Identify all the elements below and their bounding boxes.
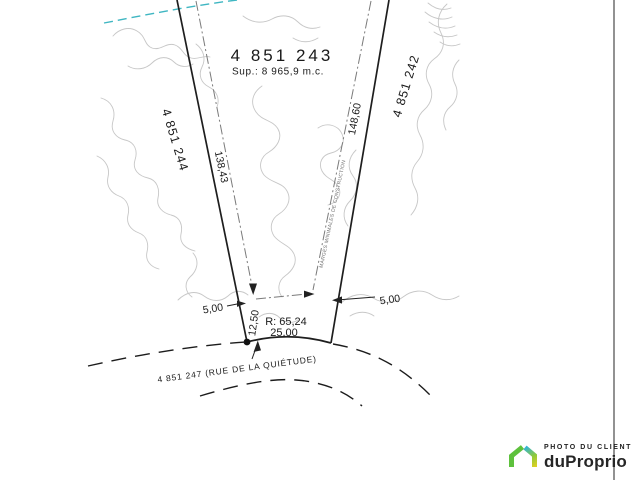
main-lot-number: 4 851 243	[231, 46, 334, 66]
setback-left-arrow	[237, 301, 246, 307]
road-edge-upper-right	[333, 344, 433, 398]
front-margin-line	[256, 294, 307, 299]
margin-down-arrow	[249, 284, 257, 296]
margin-right-arrow	[304, 291, 315, 298]
main-lot-area: Sup.: 8 965,9 m.c.	[232, 67, 324, 78]
frontage-dimension: 25,00	[270, 327, 298, 339]
road-edges	[88, 342, 433, 406]
left-margin-line	[196, 1, 252, 286]
duproprio-watermark: PHOTO DU CLIENT duProprio	[508, 443, 632, 470]
watermark-tagline: PHOTO DU CLIENT	[544, 444, 632, 451]
right-margin-line	[313, 1, 371, 290]
road-edge-lower	[200, 380, 362, 406]
duproprio-house-icon	[508, 443, 538, 470]
utility-stream-line	[104, 0, 237, 23]
watermark-brand: duProprio	[544, 453, 632, 470]
road-edge-upper-left	[88, 342, 246, 366]
street-up-arrow	[254, 341, 261, 353]
survey-plan: 4 851 243 Sup.: 8 965,9 m.c. 4 851 244 4…	[0, 0, 640, 480]
